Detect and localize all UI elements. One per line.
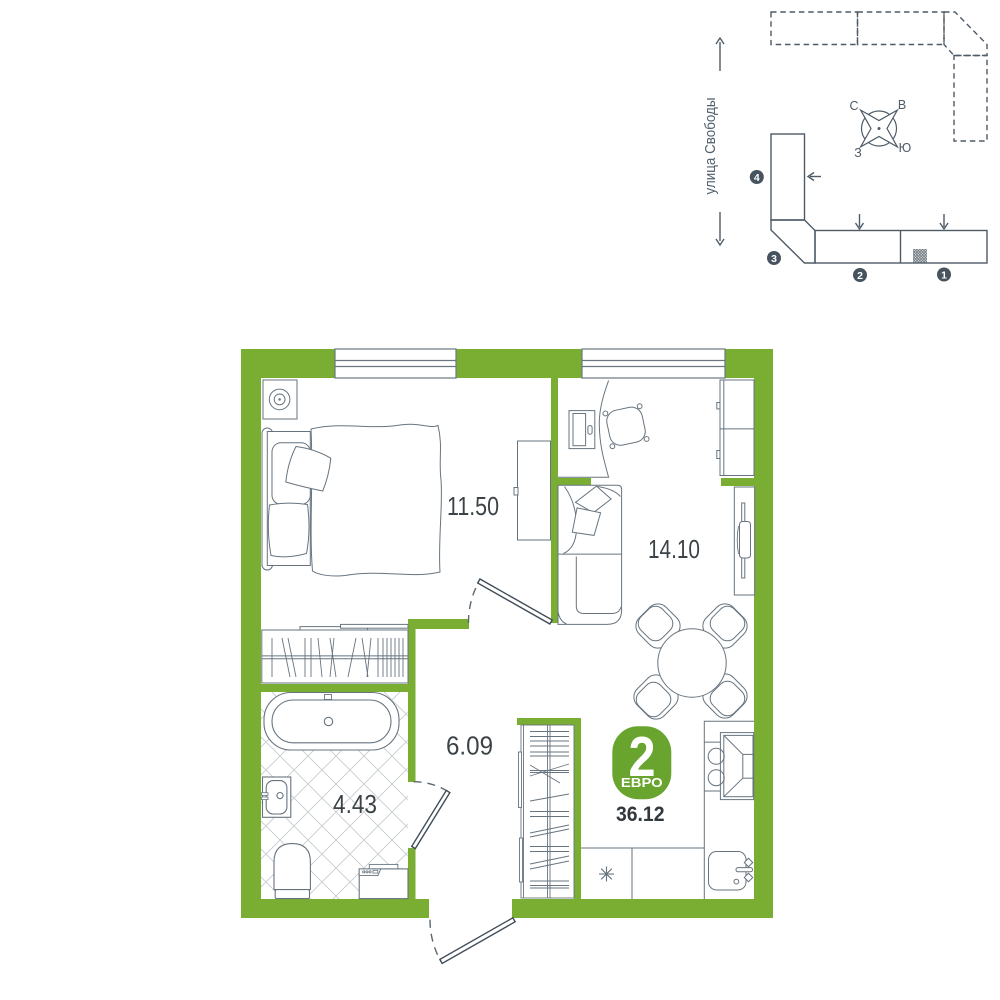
svg-text:З: З (854, 146, 862, 160)
svg-text:14.10: 14.10 (648, 534, 700, 564)
svg-text:Ю: Ю (899, 141, 912, 155)
svg-text:36.12: 36.12 (616, 803, 665, 826)
svg-text:4.43: 4.43 (333, 789, 377, 819)
svg-text:С: С (849, 99, 858, 113)
svg-text:4: 4 (754, 172, 760, 184)
svg-text:11.50: 11.50 (447, 491, 499, 521)
svg-text:1: 1 (941, 269, 947, 281)
svg-text:В: В (898, 98, 906, 112)
svg-text:2: 2 (857, 270, 863, 282)
svg-text:6.09: 6.09 (446, 731, 493, 761)
svg-text:3: 3 (771, 253, 777, 265)
svg-text:улица Свободы: улица Свободы (703, 98, 719, 195)
svg-text:ЕВРО: ЕВРО (621, 775, 663, 790)
